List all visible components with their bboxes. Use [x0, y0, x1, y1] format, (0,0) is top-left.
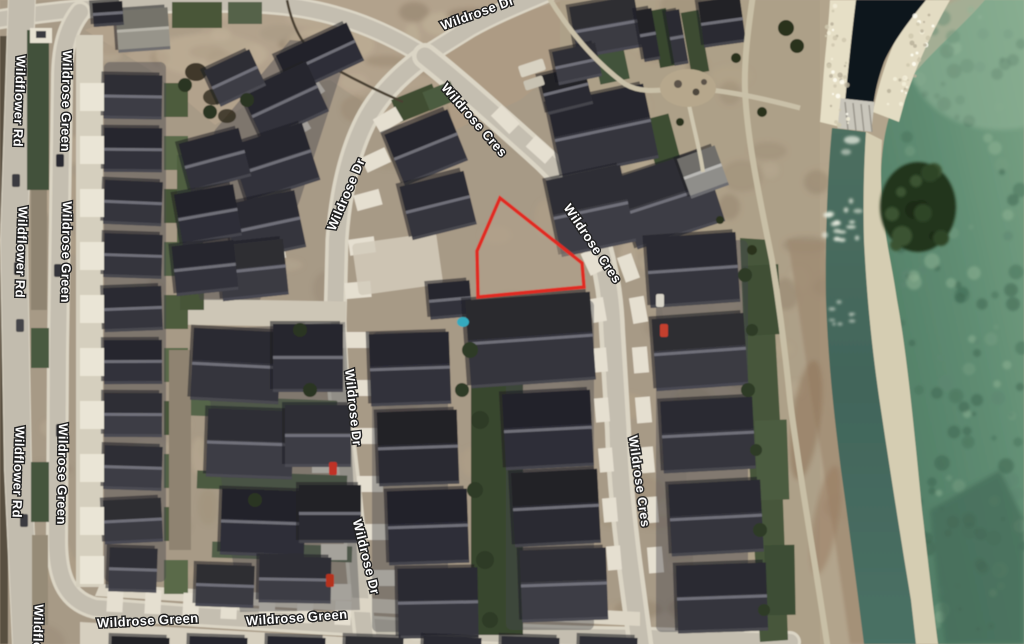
svg-text:Wildrose Green: Wildrose Green — [54, 423, 71, 525]
svg-text:Wildrose Green: Wildrose Green — [58, 201, 75, 303]
svg-text:Wildflower Rd: Wildflower Rd — [9, 426, 27, 518]
svg-text:Wildflower Rd: Wildflower Rd — [10, 55, 28, 147]
svg-text:Wildrose Green: Wildrose Green — [58, 50, 75, 152]
svg-text:Wildflower Rd: Wildflower Rd — [12, 206, 30, 298]
